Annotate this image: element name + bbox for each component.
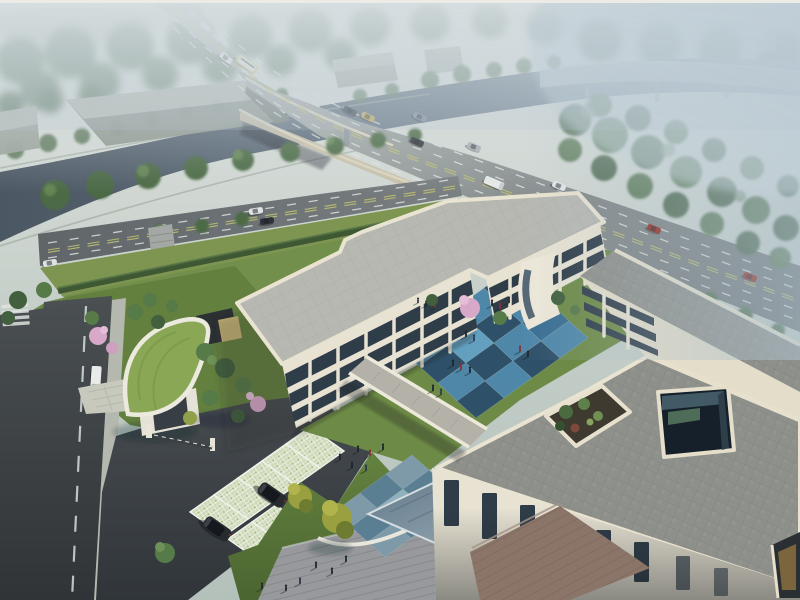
top-border-strip [0,0,800,3]
atrium-lightwell [658,387,734,457]
rendering-image [0,0,800,600]
gate-pillar [146,424,152,438]
aerial-rendering-canvas [0,0,800,600]
